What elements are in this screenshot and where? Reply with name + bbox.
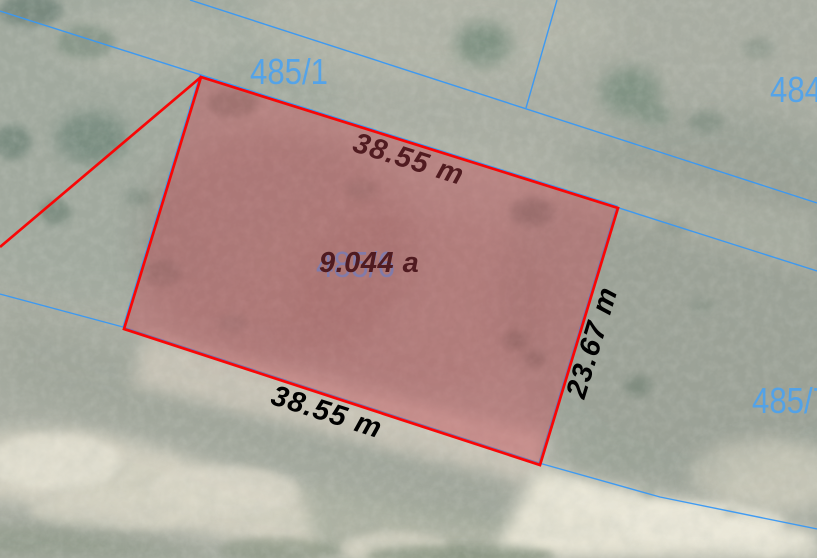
svg-text:485/7: 485/7 xyxy=(752,380,817,421)
svg-text:484/1: 484/1 xyxy=(770,69,817,110)
svg-text:485/1: 485/1 xyxy=(250,51,328,92)
